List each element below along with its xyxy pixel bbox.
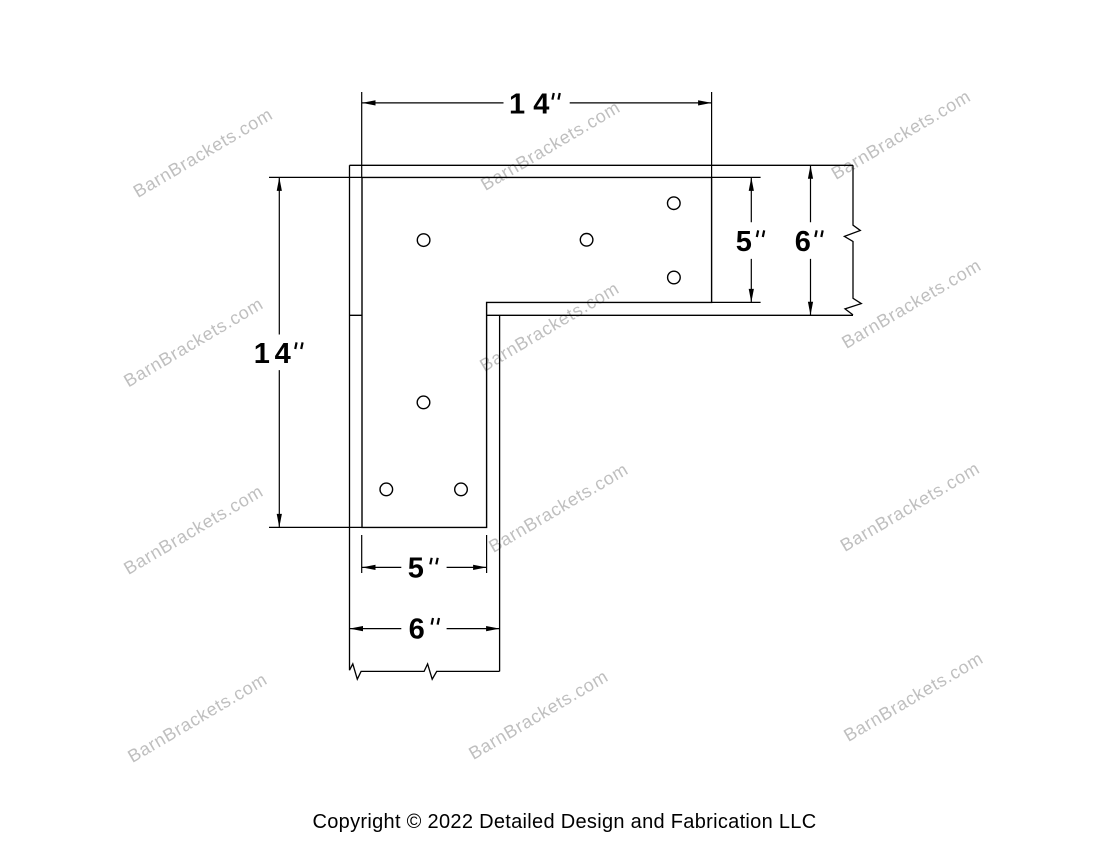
svg-text:4: 4 [533, 89, 549, 121]
svg-text:6: 6 [409, 613, 425, 645]
svg-text:1: 1 [509, 89, 525, 121]
svg-text:6: 6 [795, 226, 811, 258]
svg-text:Copyright © 2022 Detailed Desi: Copyright © 2022 Detailed Design and Fab… [313, 811, 817, 833]
svg-text:1: 1 [254, 338, 270, 370]
svg-text:4: 4 [275, 338, 291, 370]
svg-text:5: 5 [408, 553, 424, 585]
svg-text:5: 5 [736, 226, 752, 258]
